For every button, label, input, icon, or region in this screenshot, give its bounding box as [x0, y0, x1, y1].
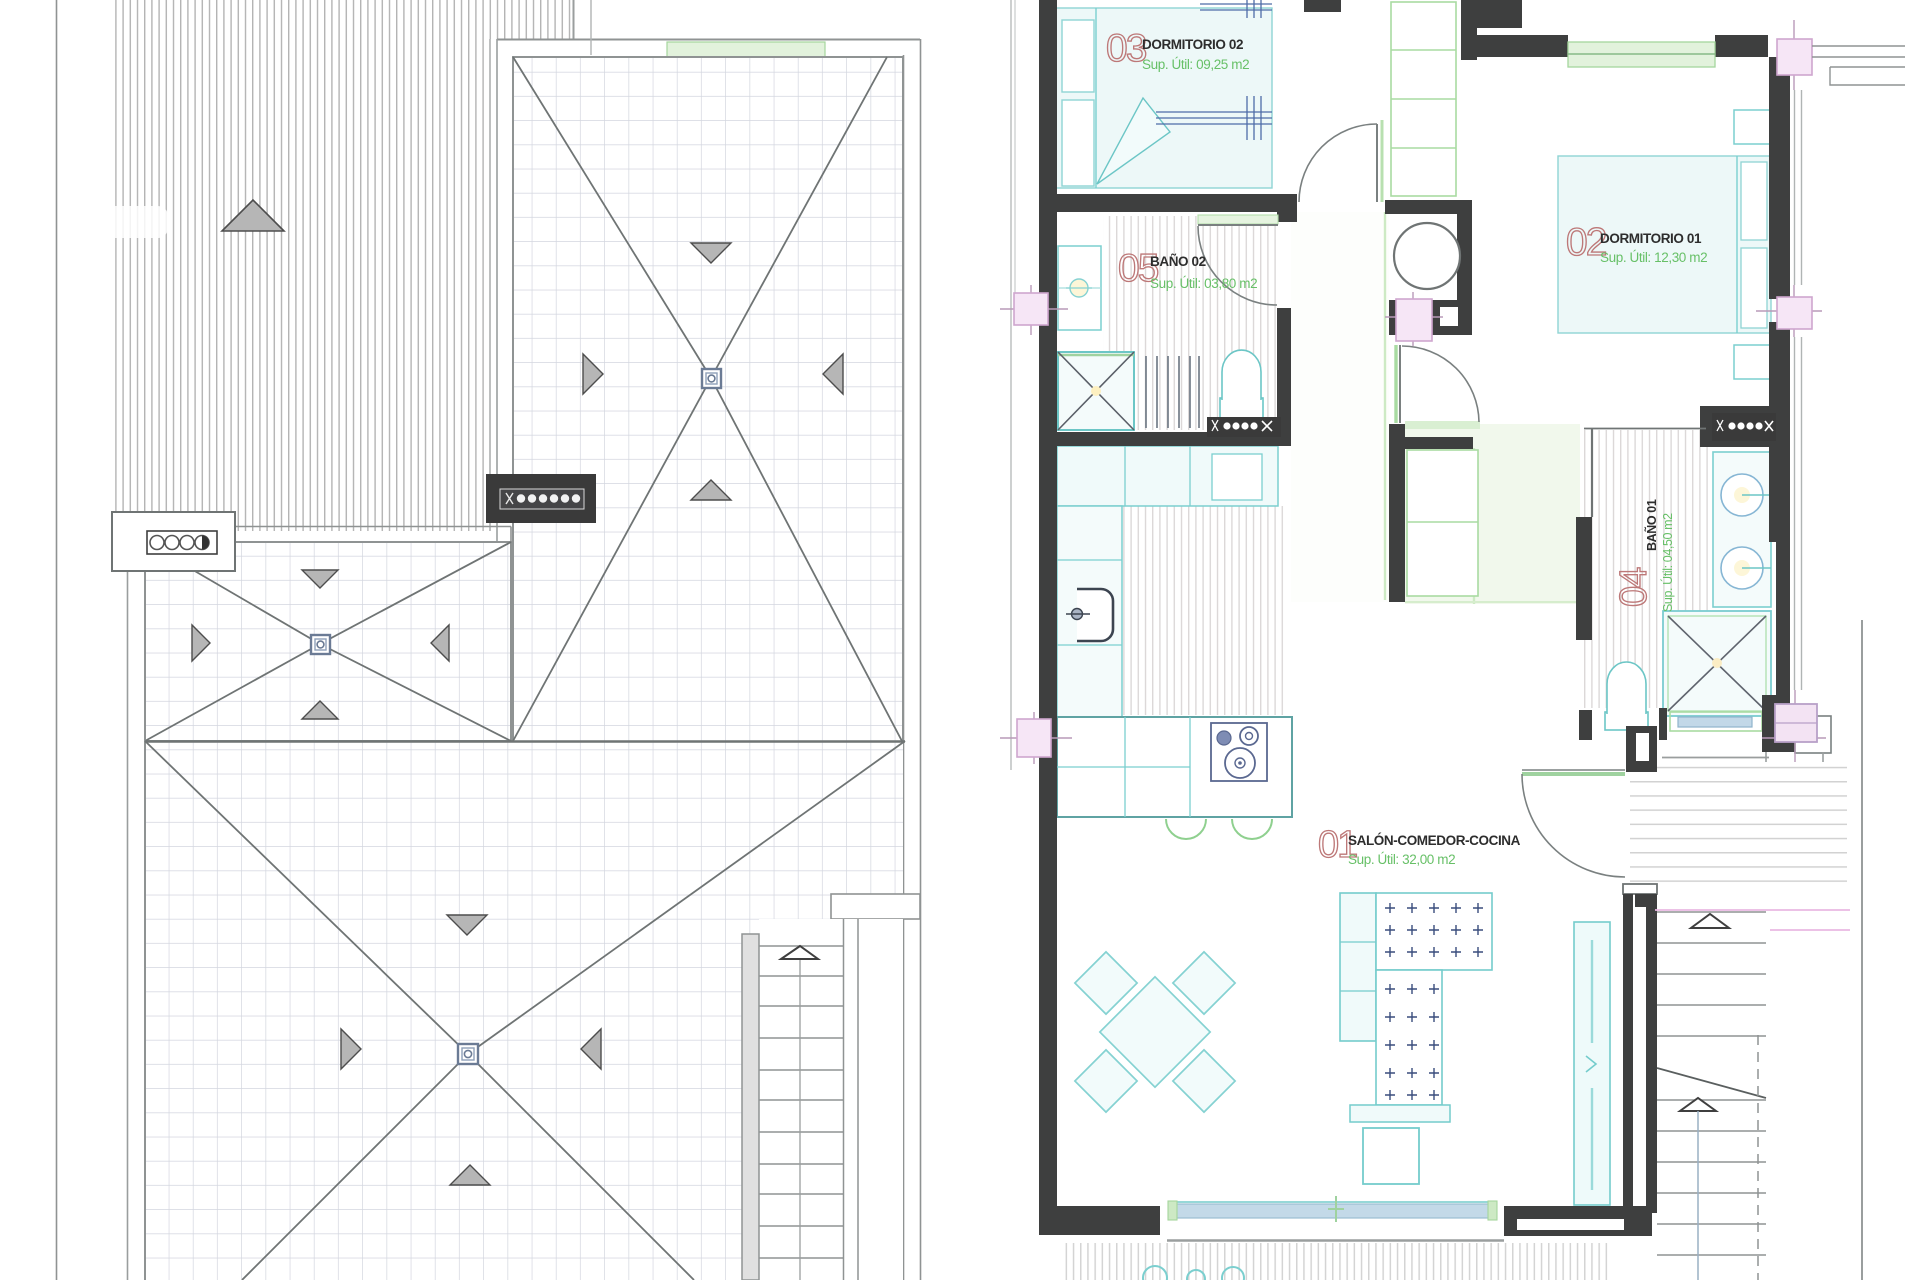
svg-text:Sup. Útil: 12,30 m2: Sup. Útil: 12,30 m2 [1600, 250, 1707, 265]
svg-text:BAÑO 02: BAÑO 02 [1150, 254, 1206, 269]
svg-text:DORMITORIO 02: DORMITORIO 02 [1142, 37, 1243, 52]
svg-text:Sup. Útil: 32,00 m2: Sup. Útil: 32,00 m2 [1348, 852, 1455, 867]
svg-text:BAÑO 01: BAÑO 01 [1644, 499, 1659, 551]
svg-text:03: 03 [1106, 27, 1146, 70]
svg-text:SALÓN-COMEDOR-COCINA: SALÓN-COMEDOR-COCINA [1348, 833, 1521, 848]
svg-text:04: 04 [1613, 567, 1655, 607]
svg-text:DORMITORIO 01: DORMITORIO 01 [1600, 231, 1702, 246]
svg-text:Sup. Útil: 04,50 m2: Sup. Útil: 04,50 m2 [1660, 513, 1675, 612]
svg-text:Sup. Útil: 03,80 m2: Sup. Útil: 03,80 m2 [1150, 276, 1257, 291]
svg-text:Sup. Útil: 09,25 m2: Sup. Útil: 09,25 m2 [1142, 57, 1249, 72]
